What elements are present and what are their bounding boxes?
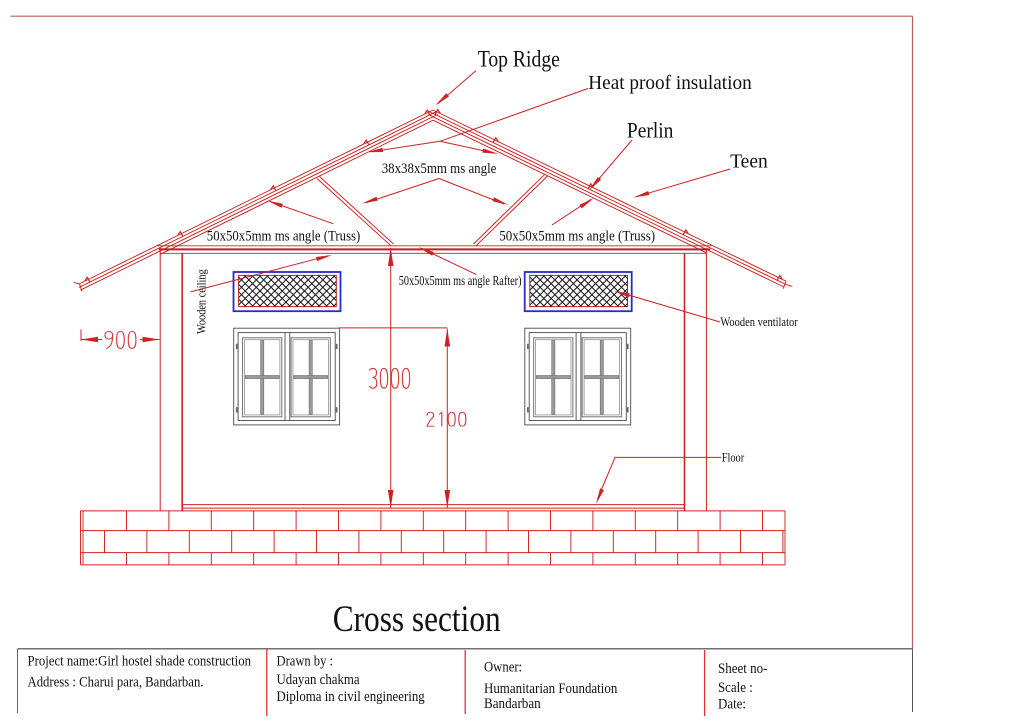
svg-text:Bandarban: Bandarban (484, 696, 541, 712)
svg-text:Top Ridge: Top Ridge (478, 47, 560, 72)
svg-text:Drawn by :: Drawn by : (277, 654, 334, 670)
svg-text:Teen: Teen (730, 151, 768, 173)
svg-text:Owner:: Owner: (484, 660, 522, 676)
svg-text:Floor: Floor (722, 450, 745, 465)
svg-text:50x50x5mm ms angle Rafter): 50x50x5mm ms angle Rafter) (399, 273, 522, 289)
svg-text:Address : Charui para, Bandarb: Address : Charui para, Bandarban. (28, 674, 204, 690)
svg-text:Date:: Date: (718, 697, 746, 713)
svg-text:Diploma in civil engineering: Diploma in civil engineering (277, 689, 425, 705)
svg-text:Project name:Girl hostel shade: Project name:Girl hostel shade construct… (28, 654, 252, 670)
svg-text:Scale :: Scale : (718, 680, 753, 696)
svg-text:Perlin: Perlin (627, 118, 674, 143)
svg-text:38x38x5mm ms angle: 38x38x5mm ms angle (382, 161, 497, 177)
svg-text:Udayan chakma: Udayan chakma (277, 672, 361, 688)
svg-text:Humanitarian Foundation: Humanitarian Foundation (484, 681, 618, 697)
svg-text:Heat proof insulation: Heat proof insulation (588, 72, 751, 94)
svg-text:Wooden ventilator: Wooden ventilator (720, 314, 798, 329)
svg-text:Wooden ceiling: Wooden ceiling (195, 269, 209, 334)
svg-text:Sheet no-: Sheet no- (718, 661, 768, 677)
svg-text:Cross section: Cross section (333, 599, 501, 640)
svg-text:50x50x5mm ms angle (Truss): 50x50x5mm ms angle (Truss) (207, 228, 360, 244)
svg-text:50x50x5mm ms angle (Truss): 50x50x5mm ms angle (Truss) (499, 228, 655, 244)
